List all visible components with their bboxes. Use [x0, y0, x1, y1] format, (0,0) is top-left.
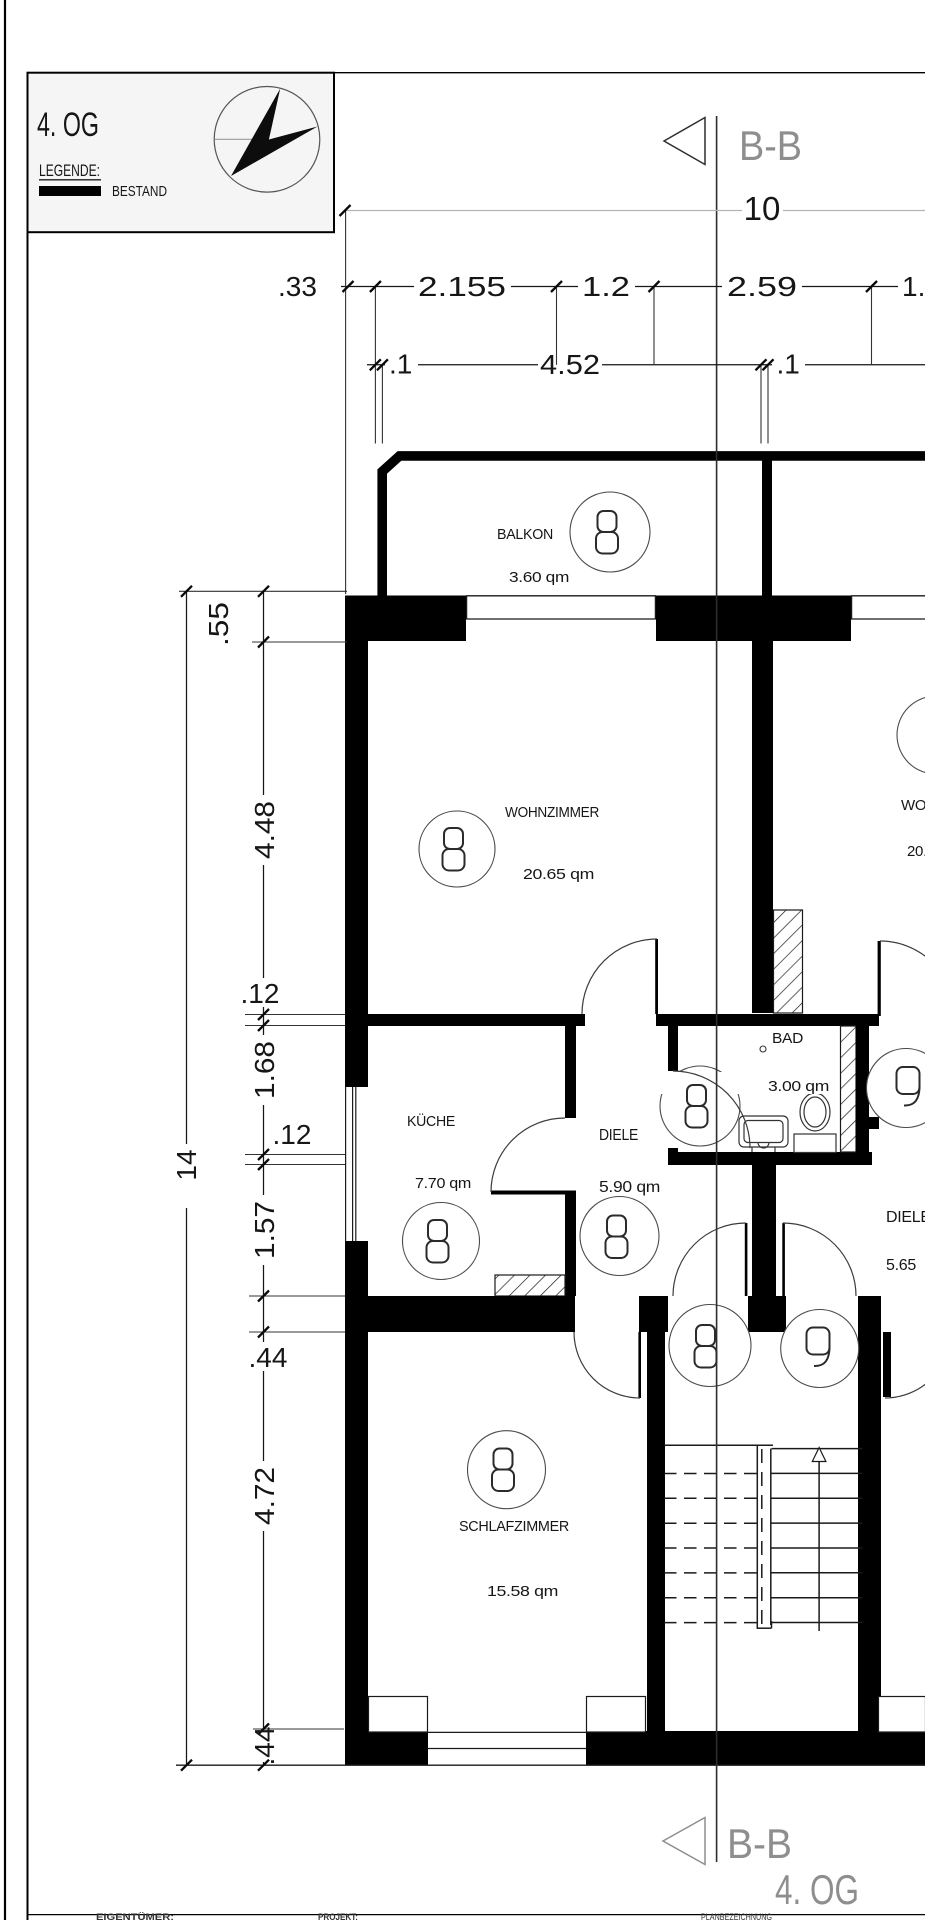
svg-text:4.52: 4.52 — [540, 349, 600, 380]
svg-text:2.59: 2.59 — [727, 271, 797, 302]
svg-text:EIGENTÜMER:: EIGENTÜMER: — [96, 1912, 174, 1920]
svg-text:LEGENDE:: LEGENDE: — [39, 161, 100, 180]
svg-text:5.90 qm: 5.90 qm — [599, 1179, 660, 1196]
svg-text:WOHNZIMMER: WOHNZIMMER — [505, 804, 599, 821]
svg-text:1.57: 1.57 — [249, 1201, 280, 1259]
svg-text:4.72: 4.72 — [249, 1467, 280, 1525]
svg-text:B-B: B-B — [727, 1820, 792, 1867]
svg-text:B-B: B-B — [739, 122, 802, 169]
svg-text:.1: .1 — [777, 349, 800, 380]
svg-text:14: 14 — [171, 1149, 202, 1180]
svg-text:WOHNZIMMER: WOHNZIMMER — [901, 797, 925, 814]
svg-text:20.65 qm: 20.65 qm — [907, 843, 925, 860]
svg-text:4.48: 4.48 — [249, 801, 280, 859]
svg-text:DIELE: DIELE — [886, 1209, 925, 1226]
svg-text:BAD: BAD — [772, 1030, 803, 1047]
svg-text:1.2: 1.2 — [902, 271, 925, 302]
svg-text:SCHLAFZIMMER: SCHLAFZIMMER — [459, 1518, 569, 1535]
svg-text:.44: .44 — [249, 1342, 288, 1373]
svg-text:.33: .33 — [278, 271, 317, 302]
svg-text:10: 10 — [744, 190, 781, 227]
svg-text:BESTAND: BESTAND — [112, 183, 167, 200]
svg-text:.44: .44 — [249, 1727, 280, 1766]
svg-text:.1: .1 — [389, 349, 412, 380]
svg-text:3.60 qm: 3.60 qm — [509, 569, 569, 586]
svg-text:15.58 qm: 15.58 qm — [487, 1583, 558, 1600]
svg-text:4. OG: 4. OG — [37, 106, 99, 144]
svg-text:5.65: 5.65 — [886, 1257, 916, 1274]
svg-text:20.65 qm: 20.65 qm — [523, 866, 594, 883]
svg-text:3.00 qm: 3.00 qm — [768, 1078, 829, 1095]
svg-text:1.2: 1.2 — [582, 271, 630, 302]
svg-text:7.70 qm: 7.70 qm — [415, 1175, 471, 1192]
svg-text:.12: .12 — [241, 978, 280, 1009]
svg-text:.12: .12 — [273, 1119, 312, 1150]
svg-text:1.68: 1.68 — [249, 1041, 280, 1099]
svg-text:DIELE: DIELE — [599, 1127, 638, 1144]
svg-text:PROJEKT:: PROJEKT: — [318, 1912, 358, 1920]
svg-text:KÜCHE: KÜCHE — [407, 1112, 455, 1130]
svg-text:BALKON: BALKON — [497, 526, 553, 543]
svg-text:PLANBEZEICHNUNG: PLANBEZEICHNUNG — [701, 1912, 772, 1920]
svg-text:.55: .55 — [203, 602, 234, 646]
svg-text:4. OG: 4. OG — [775, 1866, 859, 1913]
svg-text:2.155: 2.155 — [418, 271, 506, 302]
